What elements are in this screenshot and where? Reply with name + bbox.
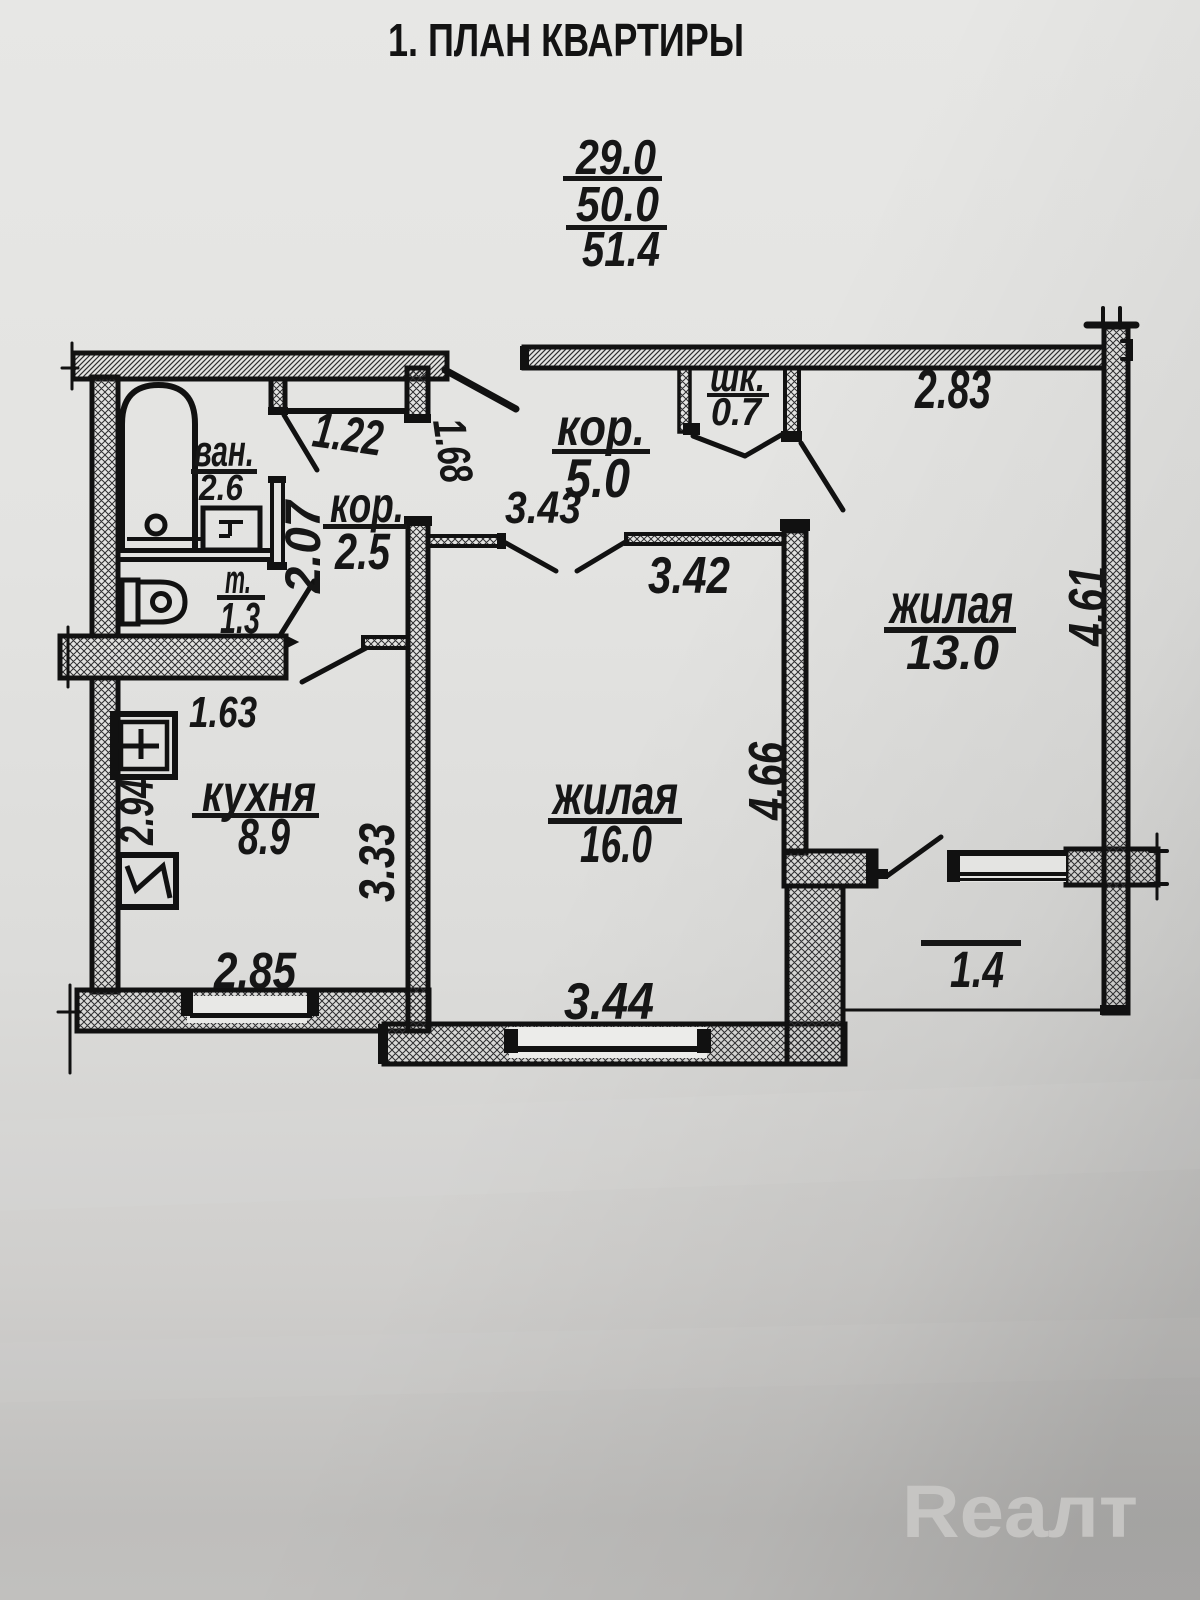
- svg-text:2.5: 2.5: [334, 523, 390, 580]
- svg-text:2.83: 2.83: [914, 358, 991, 420]
- svg-text:1.4: 1.4: [950, 941, 1004, 998]
- svg-text:16.0: 16.0: [580, 816, 652, 874]
- svg-text:2.85: 2.85: [213, 942, 296, 999]
- svg-text:3.43: 3.43: [505, 482, 581, 533]
- svg-text:2.07: 2.07: [275, 499, 331, 594]
- svg-text:2.94: 2.94: [111, 779, 164, 846]
- svg-text:1.22: 1.22: [309, 401, 386, 466]
- svg-text:3.42: 3.42: [648, 547, 730, 605]
- svg-text:3.33: 3.33: [349, 823, 405, 902]
- svg-text:1.3: 1.3: [220, 594, 260, 643]
- svg-text:2.6: 2.6: [198, 467, 244, 508]
- svg-text:жилая: жилая: [888, 572, 1013, 635]
- svg-text:51.4: 51.4: [582, 223, 660, 277]
- svg-text:1. ПЛАН КВАРТИРЫ: 1. ПЛАН КВАРТИРЫ: [388, 14, 744, 66]
- svg-text:1.63: 1.63: [189, 688, 257, 737]
- svg-text:4.61: 4.61: [1058, 566, 1118, 647]
- svg-text:8.9: 8.9: [238, 808, 290, 865]
- svg-text:3.44: 3.44: [564, 973, 654, 1031]
- svg-text:1.68: 1.68: [423, 415, 483, 486]
- svg-text:13.0: 13.0: [906, 627, 999, 680]
- svg-text:0.7: 0.7: [711, 391, 763, 434]
- svg-text:4.66: 4.66: [739, 741, 797, 821]
- svg-text:Reaлт: Reaлт: [902, 1470, 1138, 1553]
